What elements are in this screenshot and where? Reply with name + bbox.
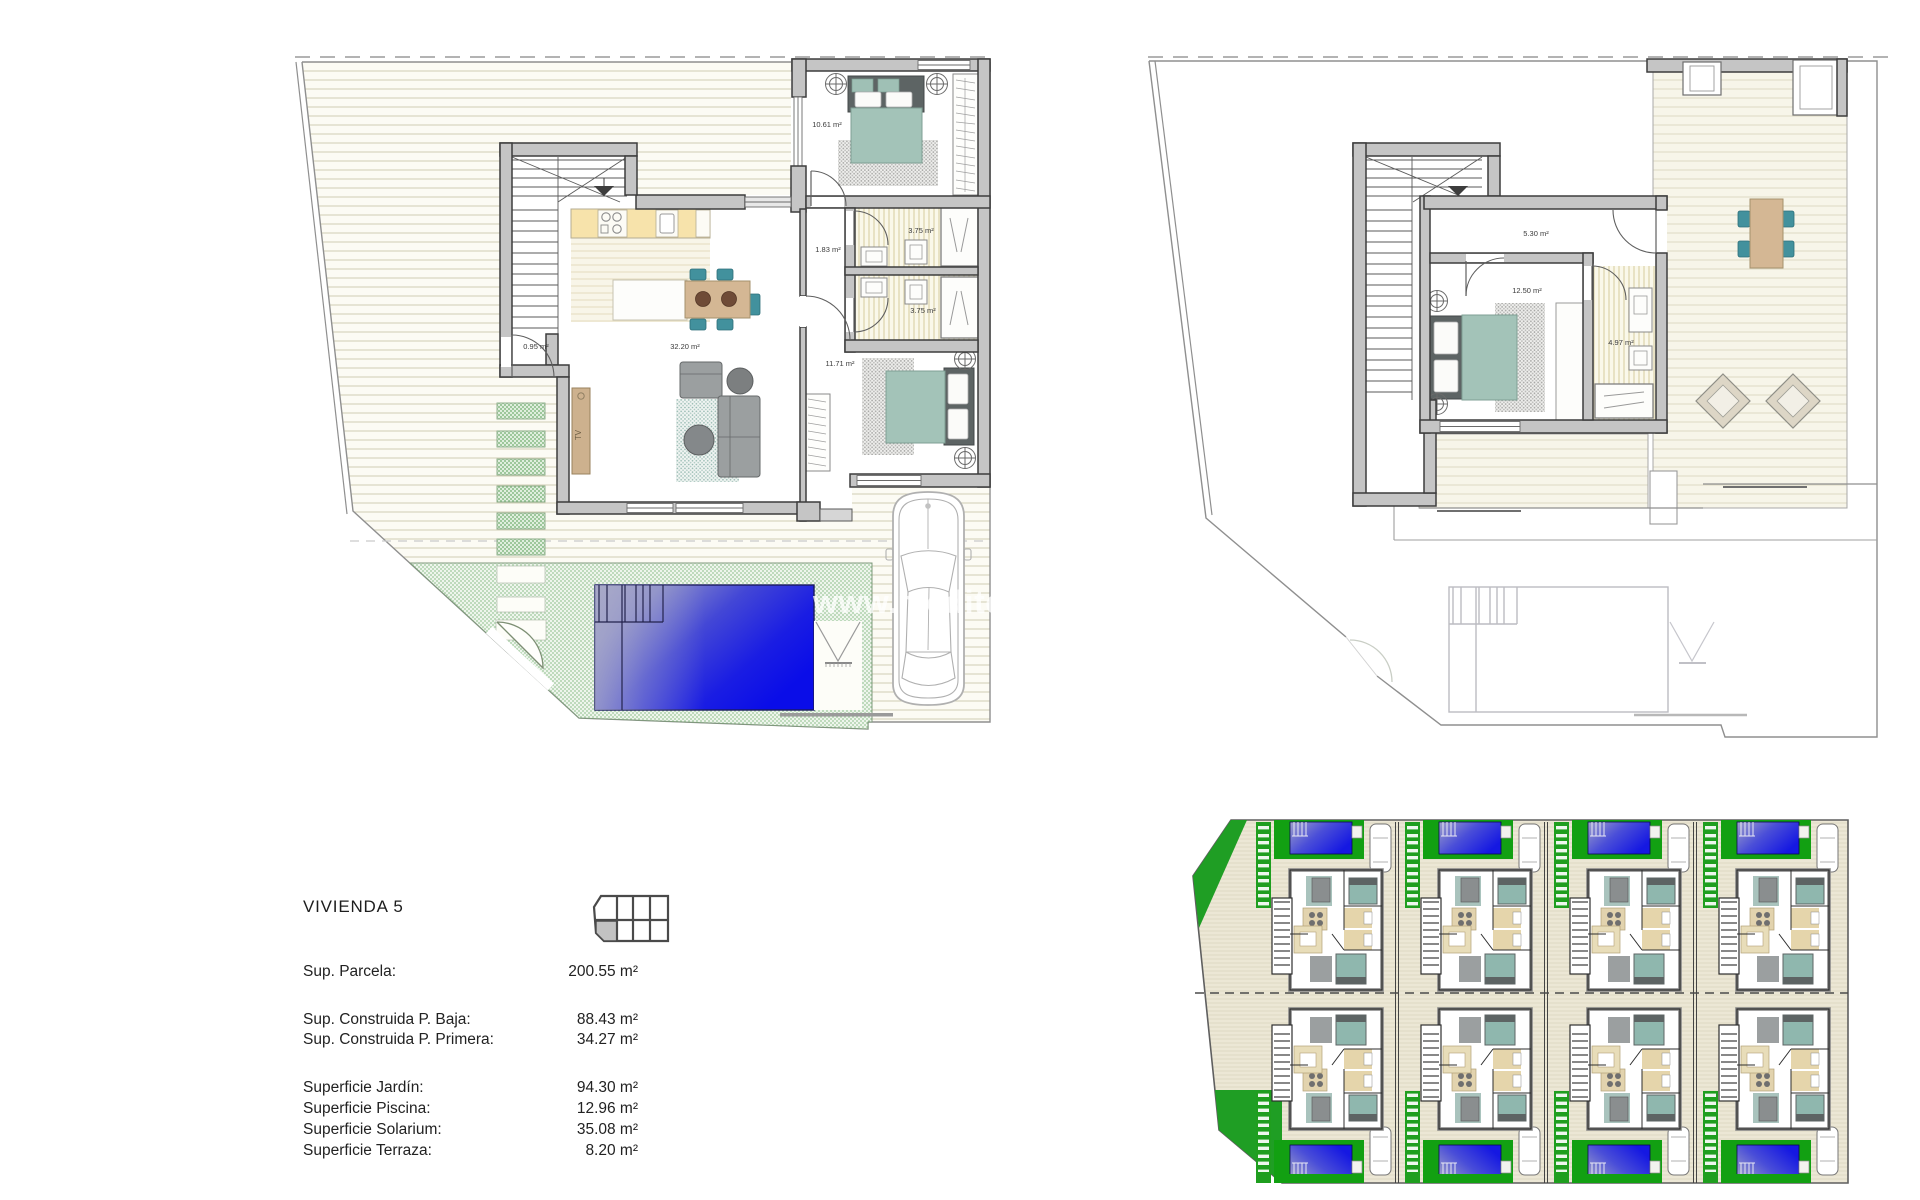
svg-text:1.83 m²: 1.83 m² (815, 245, 841, 254)
svg-text:Sup. Construida P. Baja:: Sup. Construida P. Baja: (303, 1011, 471, 1028)
svg-text:3.75 m²: 3.75 m² (908, 226, 934, 235)
svg-text:4.97 m²: 4.97 m² (1608, 338, 1634, 347)
svg-text:8.20 m²: 8.20 m² (585, 1142, 638, 1159)
svg-text:34.27 m²: 34.27 m² (577, 1031, 638, 1048)
svg-text:12.96 m²: 12.96 m² (577, 1100, 638, 1117)
svg-text:11.71 m²: 11.71 m² (825, 359, 855, 368)
svg-text:VIVIENDA 5: VIVIENDA 5 (303, 897, 404, 916)
svg-text:Superficie Jardín:: Superficie Jardín: (303, 1079, 424, 1096)
svg-text:35.08 m²: 35.08 m² (577, 1121, 638, 1138)
svg-text:94.30 m²: 94.30 m² (577, 1079, 638, 1096)
svg-text:10.61 m²: 10.61 m² (812, 120, 842, 129)
svg-text:Sup. Construida P. Primera:: Sup. Construida P. Primera: (303, 1031, 494, 1048)
svg-text:32.20 m²: 32.20 m² (670, 342, 700, 351)
svg-text:3.75 m²: 3.75 m² (910, 306, 936, 315)
svg-text:0.95 m²: 0.95 m² (523, 342, 549, 351)
svg-text:88.43 m²: 88.43 m² (577, 1011, 638, 1028)
svg-text:5.30 m²: 5.30 m² (1523, 229, 1549, 238)
svg-text:TV: TV (574, 429, 583, 440)
svg-text:Superficie Solarium:: Superficie Solarium: (303, 1121, 442, 1138)
svg-text:Superficie Terraza:: Superficie Terraza: (303, 1142, 432, 1159)
svg-text:12.50 m²: 12.50 m² (1512, 286, 1542, 295)
svg-text:www.mediterraneo: www.mediterraneo (812, 584, 1106, 620)
svg-text:200.55 m²: 200.55 m² (568, 963, 638, 980)
svg-text:Sup. Parcela:: Sup. Parcela: (303, 963, 396, 980)
svg-text:Superficie Piscina:: Superficie Piscina: (303, 1100, 431, 1117)
